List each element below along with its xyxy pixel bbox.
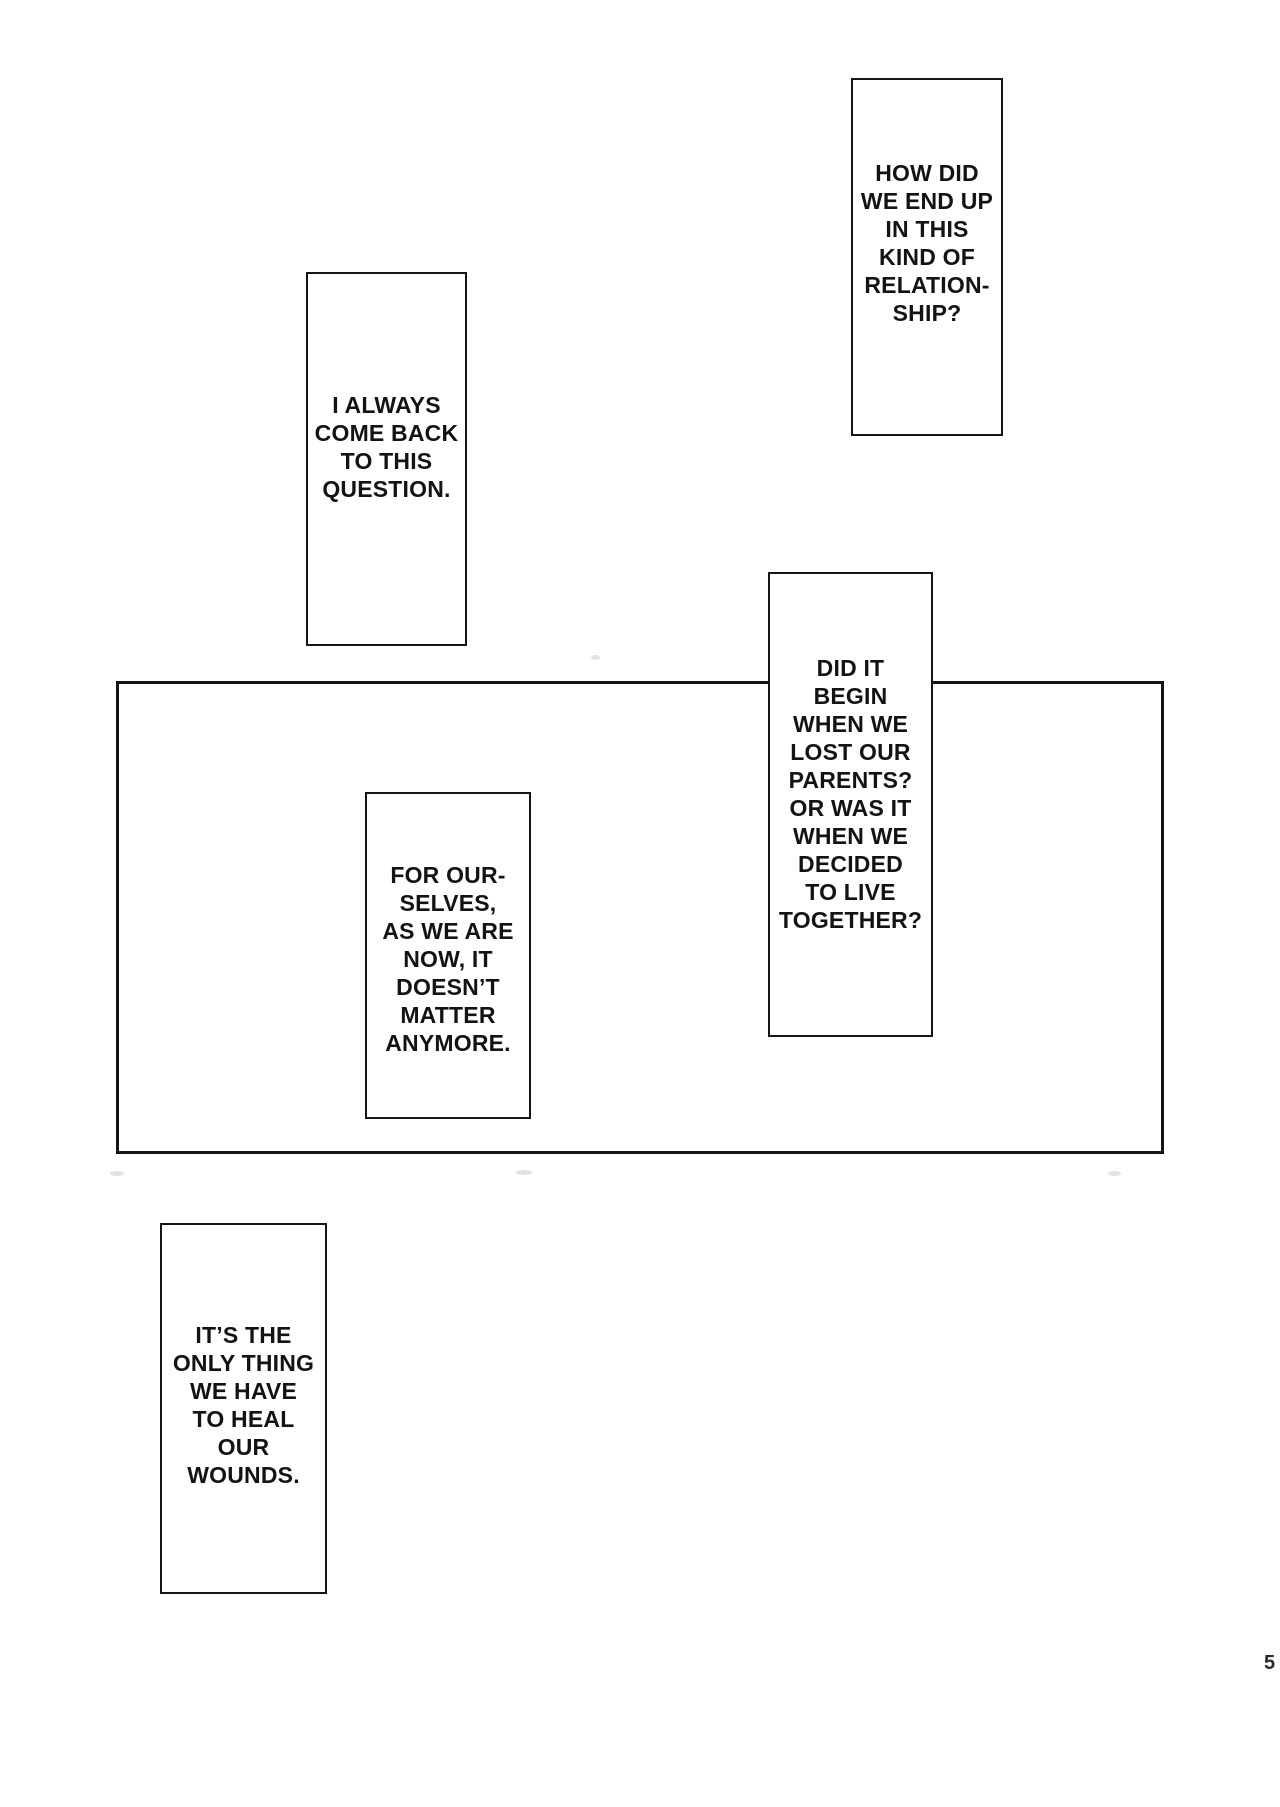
manga-page: HOW DID WE END UP IN THIS KIND OF RELATI… (0, 0, 1280, 1807)
scan-speck (516, 1170, 532, 1175)
speech-box-i-always: I ALWAYS COME BACK TO THIS QUESTION. (306, 272, 467, 646)
speech-box-for-ourselves: FOR OUR- SELVES, AS WE ARE NOW, IT DOESN… (365, 792, 531, 1119)
speech-text: IT’S THE ONLY THING WE HAVE TO HEAL OUR … (173, 1321, 314, 1489)
speech-text: FOR OUR- SELVES, AS WE ARE NOW, IT DOESN… (382, 861, 513, 1057)
scan-speck (1108, 1171, 1121, 1176)
scan-speck (591, 655, 600, 660)
speech-box-did-it-begin: DID IT BEGIN WHEN WE LOST OUR PARENTS? O… (768, 572, 933, 1037)
panel-frame (116, 681, 1164, 1154)
scan-speck (110, 1171, 124, 1176)
speech-text: HOW DID WE END UP IN THIS KIND OF RELATI… (861, 159, 993, 327)
page-number: 5 (1264, 1652, 1275, 1675)
speech-box-how-did: HOW DID WE END UP IN THIS KIND OF RELATI… (851, 78, 1003, 436)
speech-text: DID IT BEGIN WHEN WE LOST OUR PARENTS? O… (779, 654, 922, 934)
speech-text: I ALWAYS COME BACK TO THIS QUESTION. (315, 391, 459, 503)
speech-box-its-the-only-thing: IT’S THE ONLY THING WE HAVE TO HEAL OUR … (160, 1223, 327, 1594)
